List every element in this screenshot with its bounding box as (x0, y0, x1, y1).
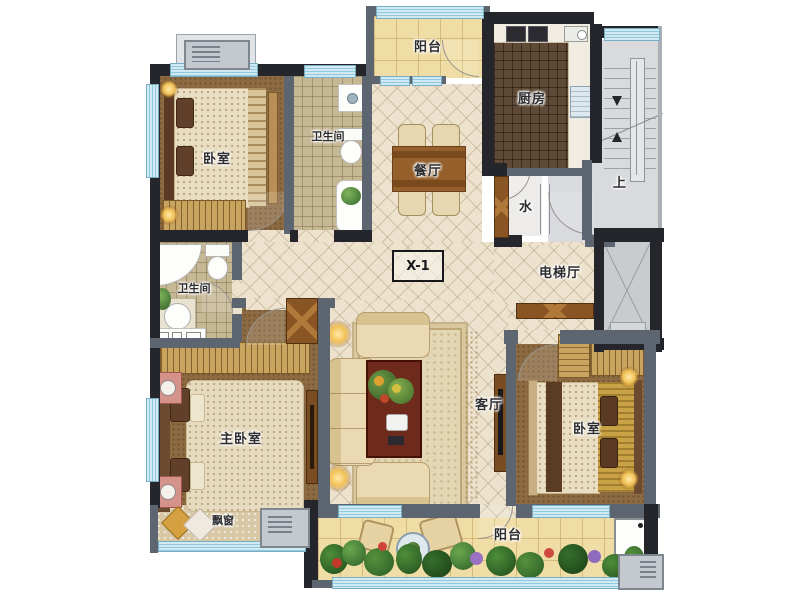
rug-fringe (464, 330, 480, 502)
plant-icon (364, 548, 394, 576)
room-label-bedroom-right: 卧室 (552, 418, 622, 437)
room-label-living: 客厅 (450, 394, 528, 413)
ceiling-lamp (159, 79, 179, 99)
dining-chair (398, 190, 426, 216)
ac-vent (192, 46, 220, 62)
plant-icon (486, 546, 516, 576)
room-label-dining: 餐厅 (392, 160, 464, 179)
wall-segment (560, 330, 660, 344)
flower-icon (380, 394, 389, 403)
stair-rail (630, 58, 645, 182)
ceiling-lamp (159, 205, 179, 225)
plant-icon (396, 544, 422, 574)
room-label-bedroom-top-left: 卧室 (172, 148, 262, 167)
plant-icon (422, 550, 452, 578)
wall-segment (150, 230, 248, 242)
wall-segment (482, 12, 594, 24)
entry-cabinet (286, 298, 318, 344)
wall-segment (494, 163, 507, 177)
wall-segment (232, 298, 246, 308)
window (146, 398, 159, 482)
armchair (356, 312, 430, 358)
flower-icon (544, 548, 554, 558)
bed-headboard (164, 86, 174, 208)
plant-icon (516, 552, 544, 578)
stair-arrow-icon (612, 132, 622, 142)
wall-segment (150, 505, 158, 553)
ac-vent (640, 561, 656, 579)
panel-knob (638, 523, 643, 528)
window (338, 505, 402, 518)
bed (164, 86, 276, 208)
pillow (176, 98, 194, 128)
stair-arrow-icon (612, 96, 622, 106)
ac-unit-icon (184, 40, 250, 70)
lamp (618, 366, 640, 388)
planter-strip (318, 540, 644, 582)
stairs-up-label: 上 (604, 172, 636, 191)
entry-door-leaf (494, 176, 509, 238)
armchair (356, 462, 430, 510)
bed-throw (248, 88, 266, 206)
room-label-elevator-hall: 电梯厅 (518, 262, 602, 281)
flower-icon (470, 552, 483, 565)
window (376, 6, 484, 19)
wall-segment (290, 230, 298, 242)
remote-icon (388, 436, 404, 445)
ac-unit-icon (260, 508, 310, 548)
tray-icon (386, 414, 408, 431)
window (146, 84, 159, 178)
unit-code-box: X-1 (392, 250, 444, 282)
wall-segment (318, 298, 330, 512)
window (304, 65, 356, 78)
pillow (600, 438, 618, 468)
lamp-icon (160, 484, 176, 500)
flower-icon (374, 376, 384, 386)
wall-segment (284, 76, 294, 234)
pillow (190, 462, 205, 490)
window (532, 505, 610, 518)
lamp (618, 468, 640, 490)
tv-console (306, 390, 318, 484)
wall-segment (506, 344, 516, 506)
room-label-water: 水 (508, 196, 544, 215)
room-label-balcony-bottom: 阳台 (468, 524, 548, 543)
stair-rail-line (636, 61, 637, 175)
room-label-bathroom-left: 卫生间 (156, 280, 232, 296)
wall-segment (334, 230, 372, 242)
flower-icon (332, 558, 342, 568)
ac-vent (268, 516, 292, 536)
pillow (190, 394, 205, 422)
wall-segment (366, 6, 374, 80)
window (412, 76, 442, 86)
window (332, 577, 644, 589)
room-label-bathroom-top: 卫生间 (292, 128, 364, 144)
wall-segment (494, 168, 582, 176)
wall-segment (582, 160, 592, 240)
table-rail (393, 180, 465, 187)
wall-segment (232, 242, 242, 280)
room-label-master-bedroom: 主卧室 (186, 428, 296, 447)
plant-icon (558, 544, 588, 574)
dining-floor-join (372, 230, 482, 242)
lamp-icon (160, 380, 176, 396)
room-label-kitchen: 厨房 (494, 88, 570, 107)
window (604, 28, 660, 41)
stove-burner-icon (506, 26, 526, 42)
wall-segment (590, 24, 602, 163)
dining-chair (432, 190, 460, 216)
unit-entry-door (516, 303, 594, 319)
plant-icon (341, 187, 361, 205)
table-rail (393, 151, 465, 158)
tv-icon (310, 405, 314, 469)
unit-code-label: X-1 (406, 259, 429, 274)
stove-burner-icon (528, 26, 548, 42)
window (380, 76, 410, 86)
ac-unit-icon (618, 554, 664, 590)
wall-segment (658, 26, 662, 232)
wall-segment (504, 330, 518, 344)
wall-segment (150, 338, 240, 348)
door-gap (232, 280, 242, 314)
bed-runner (546, 382, 562, 492)
door-gap (518, 330, 560, 344)
toilet-icon (204, 244, 230, 280)
sink-icon (347, 93, 358, 104)
floor-plan: 阳台 厨房 卧室 卫生间 餐厅 水 上 X-1 电梯厅 卫生间 主卧室 客厅 卧… (0, 0, 800, 600)
kitchen-sink-icon (564, 26, 588, 42)
wall-segment (362, 76, 372, 234)
wall-segment (644, 344, 656, 506)
room-label-balcony-top: 阳台 (374, 36, 482, 55)
fridge-icon (570, 86, 591, 118)
bed-bench (268, 92, 278, 204)
flower-icon (378, 542, 387, 551)
plant-icon (342, 540, 366, 566)
bay-window-label: 飘窗 (188, 512, 258, 528)
flower-icon (392, 384, 401, 393)
wall-segment (482, 24, 494, 176)
door-gap (298, 230, 334, 242)
toilet-bowl (207, 256, 228, 280)
sink-basin (577, 30, 587, 40)
flower-icon (588, 550, 601, 563)
